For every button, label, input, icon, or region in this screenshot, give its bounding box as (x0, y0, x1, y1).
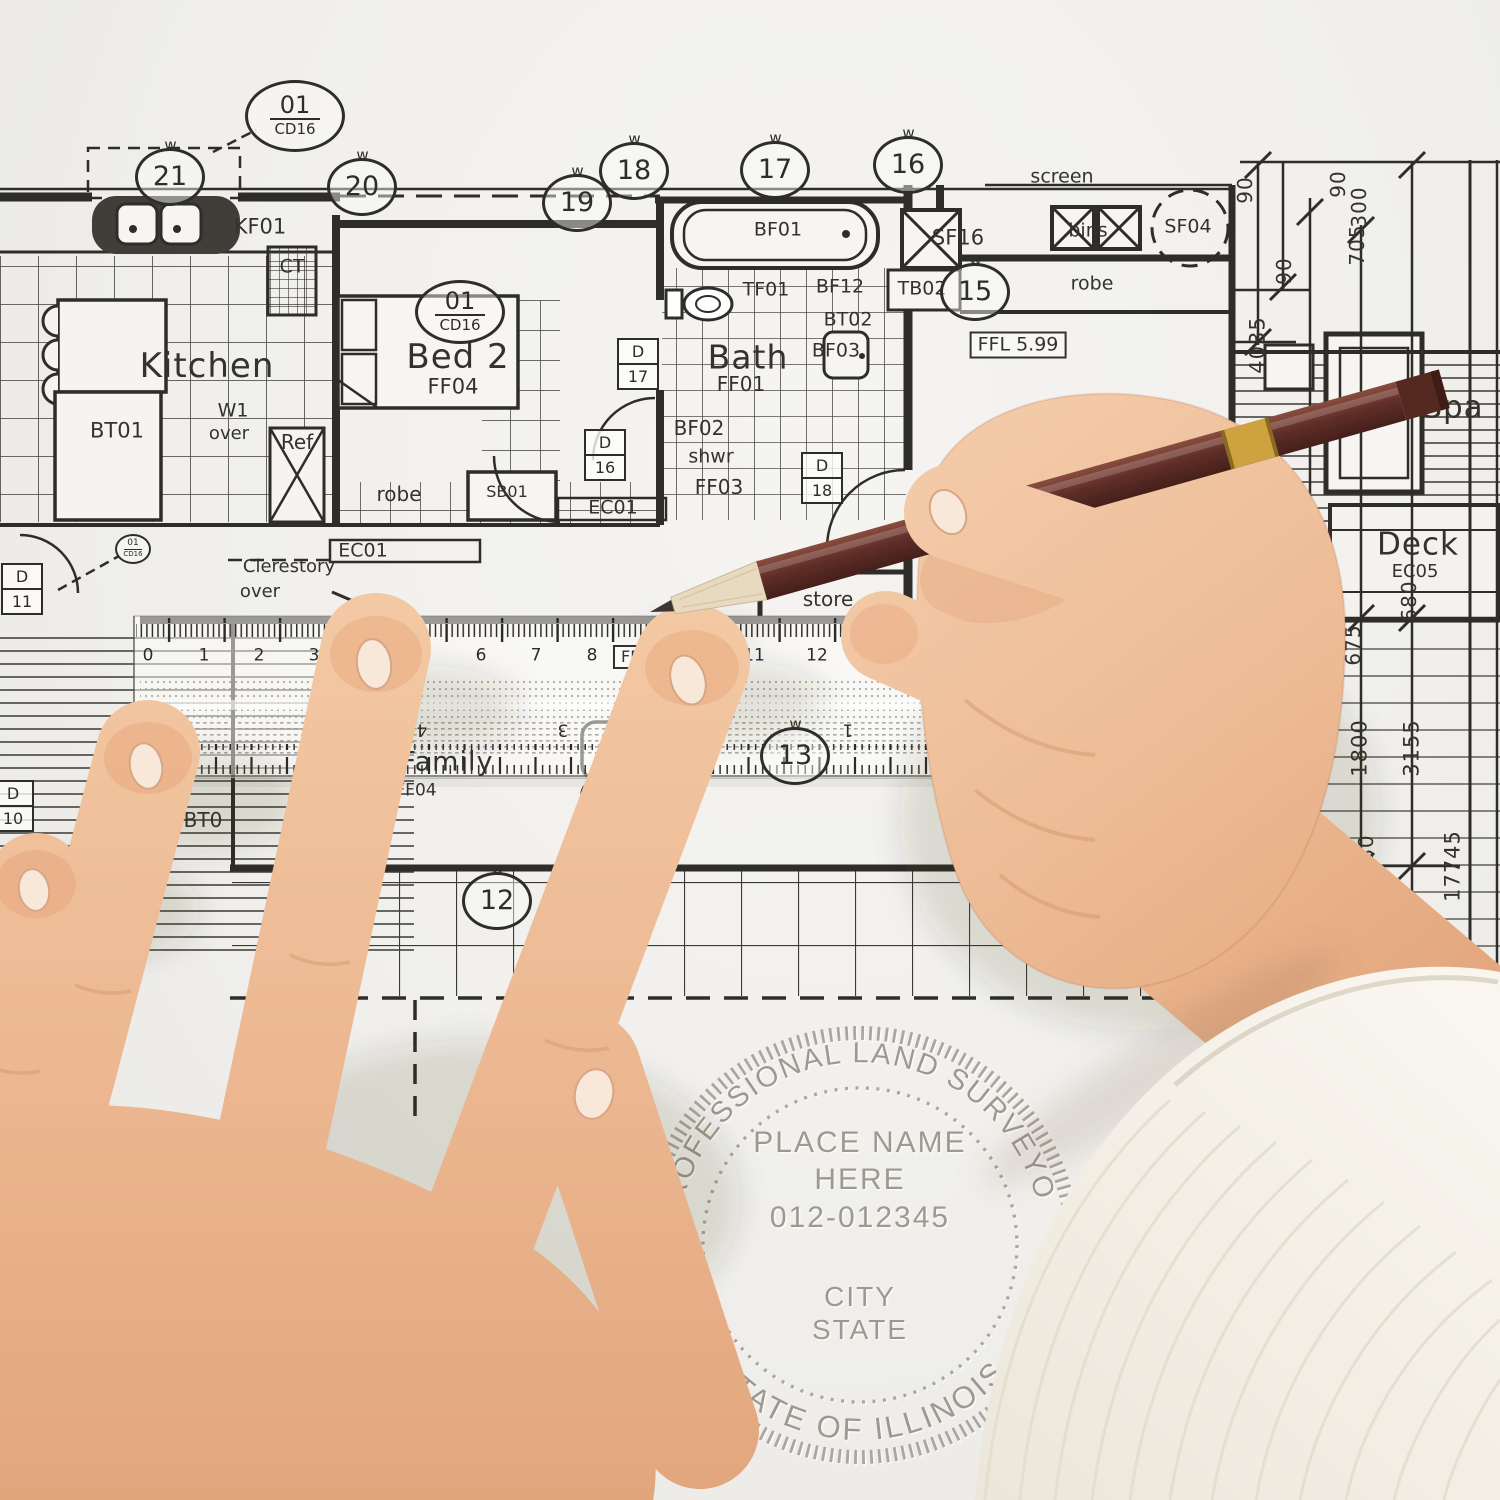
hands-and-pencil (0, 0, 1500, 1500)
thumb-tip-blush (850, 604, 918, 664)
sleeve-body (975, 967, 1500, 1500)
photo-canvas: KF01CTKitchenBT01W1overRefrobeSB01EC01Cl… (0, 0, 1500, 1500)
